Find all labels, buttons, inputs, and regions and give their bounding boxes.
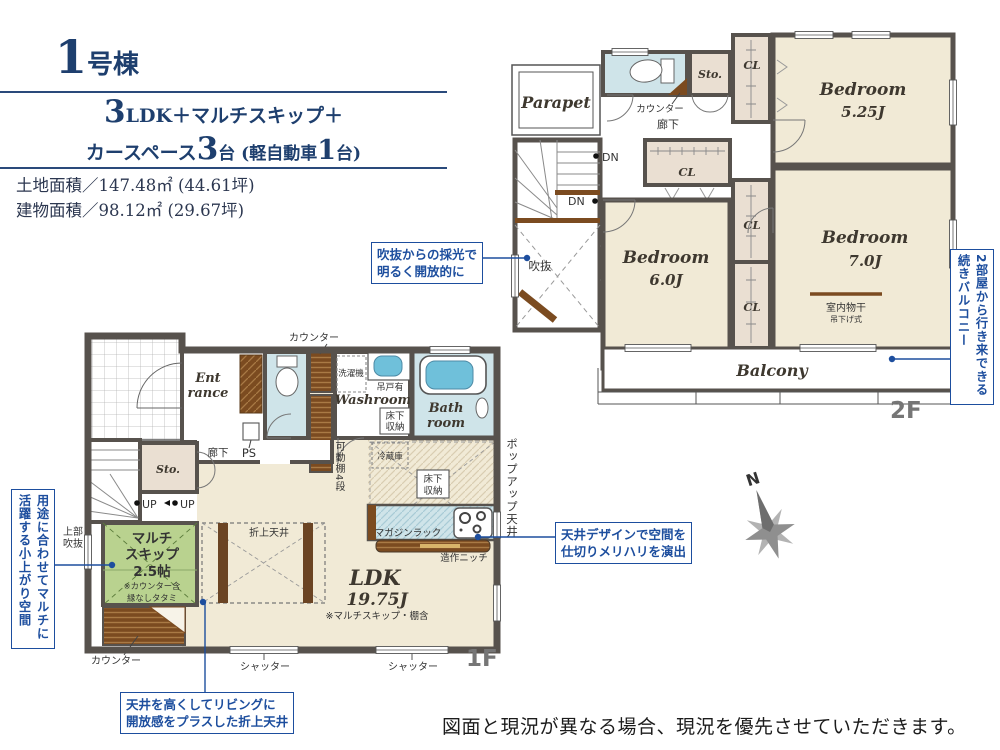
multi-label-1: マルチ	[132, 531, 173, 547]
plan-num-kei: 1	[317, 135, 336, 166]
compass-icon: N	[715, 459, 816, 579]
entrance-label-2: rance	[188, 386, 229, 401]
shutter-label-2: シャッター	[388, 661, 438, 673]
ldk-label: LDK	[348, 565, 401, 590]
header-divider-bottom	[0, 167, 447, 169]
up-label-1: UP	[142, 498, 157, 511]
floor1-plan: Ent rance カウンター 洗濯機 吊戸有 Washroom 床下 収納	[80, 330, 510, 675]
magazine-rack-label: マガジンラック	[375, 528, 442, 539]
entrance-porch	[88, 336, 182, 440]
plan-text-1: LDK＋マルチスキップ＋	[126, 105, 343, 127]
parapet-label: Parapet	[520, 93, 591, 112]
callout-void-light: 吹抜からの採光で 明るく開放的に	[371, 242, 483, 284]
niche-label: 造作ニッチ	[440, 552, 488, 564]
callout-coffered: 天井を高くしてリビングに 開放感をプラスした折上天井	[120, 692, 294, 734]
underfloor-storage-kitchen: 床下 収納	[417, 470, 449, 498]
entrance-label-1: Ent	[194, 371, 220, 386]
counter-bottom-shape	[103, 607, 185, 645]
balcony-label: Balcony	[735, 361, 809, 380]
drying-sub-label: 吊下げ式	[830, 314, 862, 324]
bedroom-70-size: 7.0J	[848, 252, 882, 270]
building-number: 1	[55, 30, 87, 84]
multi-note-1: ※カウンター含	[124, 581, 181, 591]
building-title: 1号棟	[55, 30, 139, 84]
callout-multi-space-text: 用途に合わせてマルチに活躍する小上がり空間	[17, 494, 49, 640]
dn-label-2: DN	[568, 195, 585, 208]
shoe-cabinet	[240, 355, 262, 413]
upper-void-label: 上部 吹抜	[59, 527, 87, 551]
building-area: 建物面積／98.12㎡ (29.67坪)	[16, 198, 255, 223]
floor2-label: 2F	[890, 398, 922, 424]
up-dot-2	[172, 500, 178, 506]
coffered-label: 折上天井	[249, 526, 289, 539]
callout-ceiling-design: 天井デザインで空間を 仕切りメリハリを演出	[555, 522, 692, 564]
plan-summary: 3LDK＋マルチスキップ＋ カースペース3台 (軽自動車1台)	[0, 96, 447, 171]
parapet: Parapet	[512, 65, 600, 135]
callout-ceiling-line1: 天井デザインで空間を	[561, 526, 686, 543]
callout-ceiling-line2: 仕切りメリハリを演出	[561, 543, 686, 560]
peninsula-counter	[376, 540, 490, 552]
callout-balcony: 2部屋から行き来できる続きバルコニー	[950, 249, 994, 405]
dn-label-1: DN	[602, 151, 619, 164]
plan-text-3: 台 (軽自動車	[218, 144, 317, 164]
hanging-label: 吊戸有	[376, 381, 403, 393]
floor2-plan: 吹抜 Parapet カウンター 廊下 Sto. CL Bedroom 5.25…	[500, 20, 960, 420]
bathroom-label-1: Bath	[428, 401, 464, 416]
multi-label-2: スキップ	[125, 547, 179, 563]
floor1-label: 1F	[466, 646, 498, 672]
bedroom-525-size: 5.25J	[841, 103, 886, 121]
stove-icon	[454, 508, 492, 538]
dn-dot-2	[592, 198, 598, 204]
counter-strip	[310, 352, 332, 392]
bathtub-water	[426, 361, 473, 389]
bedroom-525-name: Bedroom	[819, 80, 907, 100]
fridge-label: 冷蔵庫	[377, 451, 403, 462]
bedroom-60-size: 6.0J	[649, 271, 683, 289]
svg-text:床下: 床下	[385, 410, 404, 422]
washroom-label: Washroom	[335, 393, 412, 408]
ps-shaft	[243, 423, 259, 440]
stair-landing-edge2	[515, 218, 600, 223]
callout-void-light-line1: 吹抜からの採光で	[377, 246, 477, 263]
plan-num-cars: 3	[197, 131, 219, 167]
closet-wide-label: CL	[678, 165, 695, 179]
counter-top-label: カウンター	[289, 332, 339, 344]
washbasin-icon	[374, 356, 402, 376]
popup-ceiling-label: ポップアップ天井	[504, 438, 520, 538]
dn-dot-1	[593, 153, 599, 159]
svg-text:収納: 収納	[385, 421, 404, 433]
land-area: 土地面積／147.48㎡ (44.61坪)	[16, 173, 255, 198]
callout-void-light-line2: 明るく開放的に	[377, 263, 477, 280]
closet-top-2f	[733, 35, 770, 122]
callout-coffered-line2: 開放感をプラスした折上天井	[126, 713, 288, 730]
area-stats: 土地面積／147.48㎡ (44.61坪) 建物面積／98.12㎡ (29.67…	[16, 173, 255, 223]
up-dot-1	[134, 500, 140, 506]
counter-bottom-label: カウンター	[91, 655, 141, 667]
ps-label: PS	[242, 446, 256, 460]
washer-label: 洗濯機	[338, 368, 364, 379]
svg-text:床下: 床下	[423, 473, 442, 485]
up-label-2: UP	[180, 498, 195, 511]
storage-label-2f: Sto.	[698, 68, 722, 81]
ldk-note-label: ※マルチスキップ・棚含	[326, 610, 429, 622]
closet-top-label: CL	[743, 58, 760, 72]
compass-north-label: N	[744, 468, 763, 490]
hall-label-1f: 廊下	[208, 446, 229, 459]
svg-text:収納: 収納	[423, 485, 442, 497]
counter-label-2f: カウンター	[636, 104, 684, 115]
callout-coffered-line1: 天井を高くしてリビングに	[126, 696, 288, 713]
disclaimer-text: 図面と現況が異なる場合、現況を優先させていただきます。	[442, 712, 967, 739]
hall-label-2f: 廊下	[657, 117, 679, 131]
plan-text-2: カースペース	[86, 142, 197, 164]
plan-text-4: 台)	[336, 144, 361, 164]
callout-balcony-text: 2部屋から行き来できる続きバルコニー	[956, 254, 988, 397]
closet-bot-label: CL	[743, 300, 760, 314]
multi-label-3: 2.5帖	[133, 563, 171, 580]
bedroom-525	[773, 35, 953, 165]
shutter-label-1: シャッター	[240, 661, 290, 673]
floorplan-page: 1号棟 3LDK＋マルチスキップ＋ カースペース3台 (軽自動車1台) 土地面積…	[0, 0, 1000, 750]
toilet-icon-1f	[276, 356, 298, 396]
multi-note-2: 縁なしタタミ	[127, 593, 177, 603]
drying-label: 室内物干	[826, 301, 866, 314]
underfloor-storage-wash: 床下 収納	[380, 408, 410, 434]
movable-shelf-label: 可動棚4段	[331, 441, 346, 492]
bath-door-icon	[476, 398, 488, 418]
plan-num-ldk: 3	[104, 94, 126, 130]
bedroom-70-name: Bedroom	[821, 228, 909, 248]
bedroom-60-name: Bedroom	[622, 248, 710, 268]
header-divider-top	[0, 91, 447, 93]
ldk-size-label: 19.75J	[346, 590, 408, 610]
storage-label-1f: Sto.	[156, 463, 180, 476]
building-suffix: 号棟	[87, 50, 139, 80]
bathroom-label-2: room	[427, 416, 465, 431]
callout-multi-space: 用途に合わせてマルチに活躍する小上がり空間	[11, 489, 55, 649]
void-label: 吹抜	[529, 259, 552, 273]
